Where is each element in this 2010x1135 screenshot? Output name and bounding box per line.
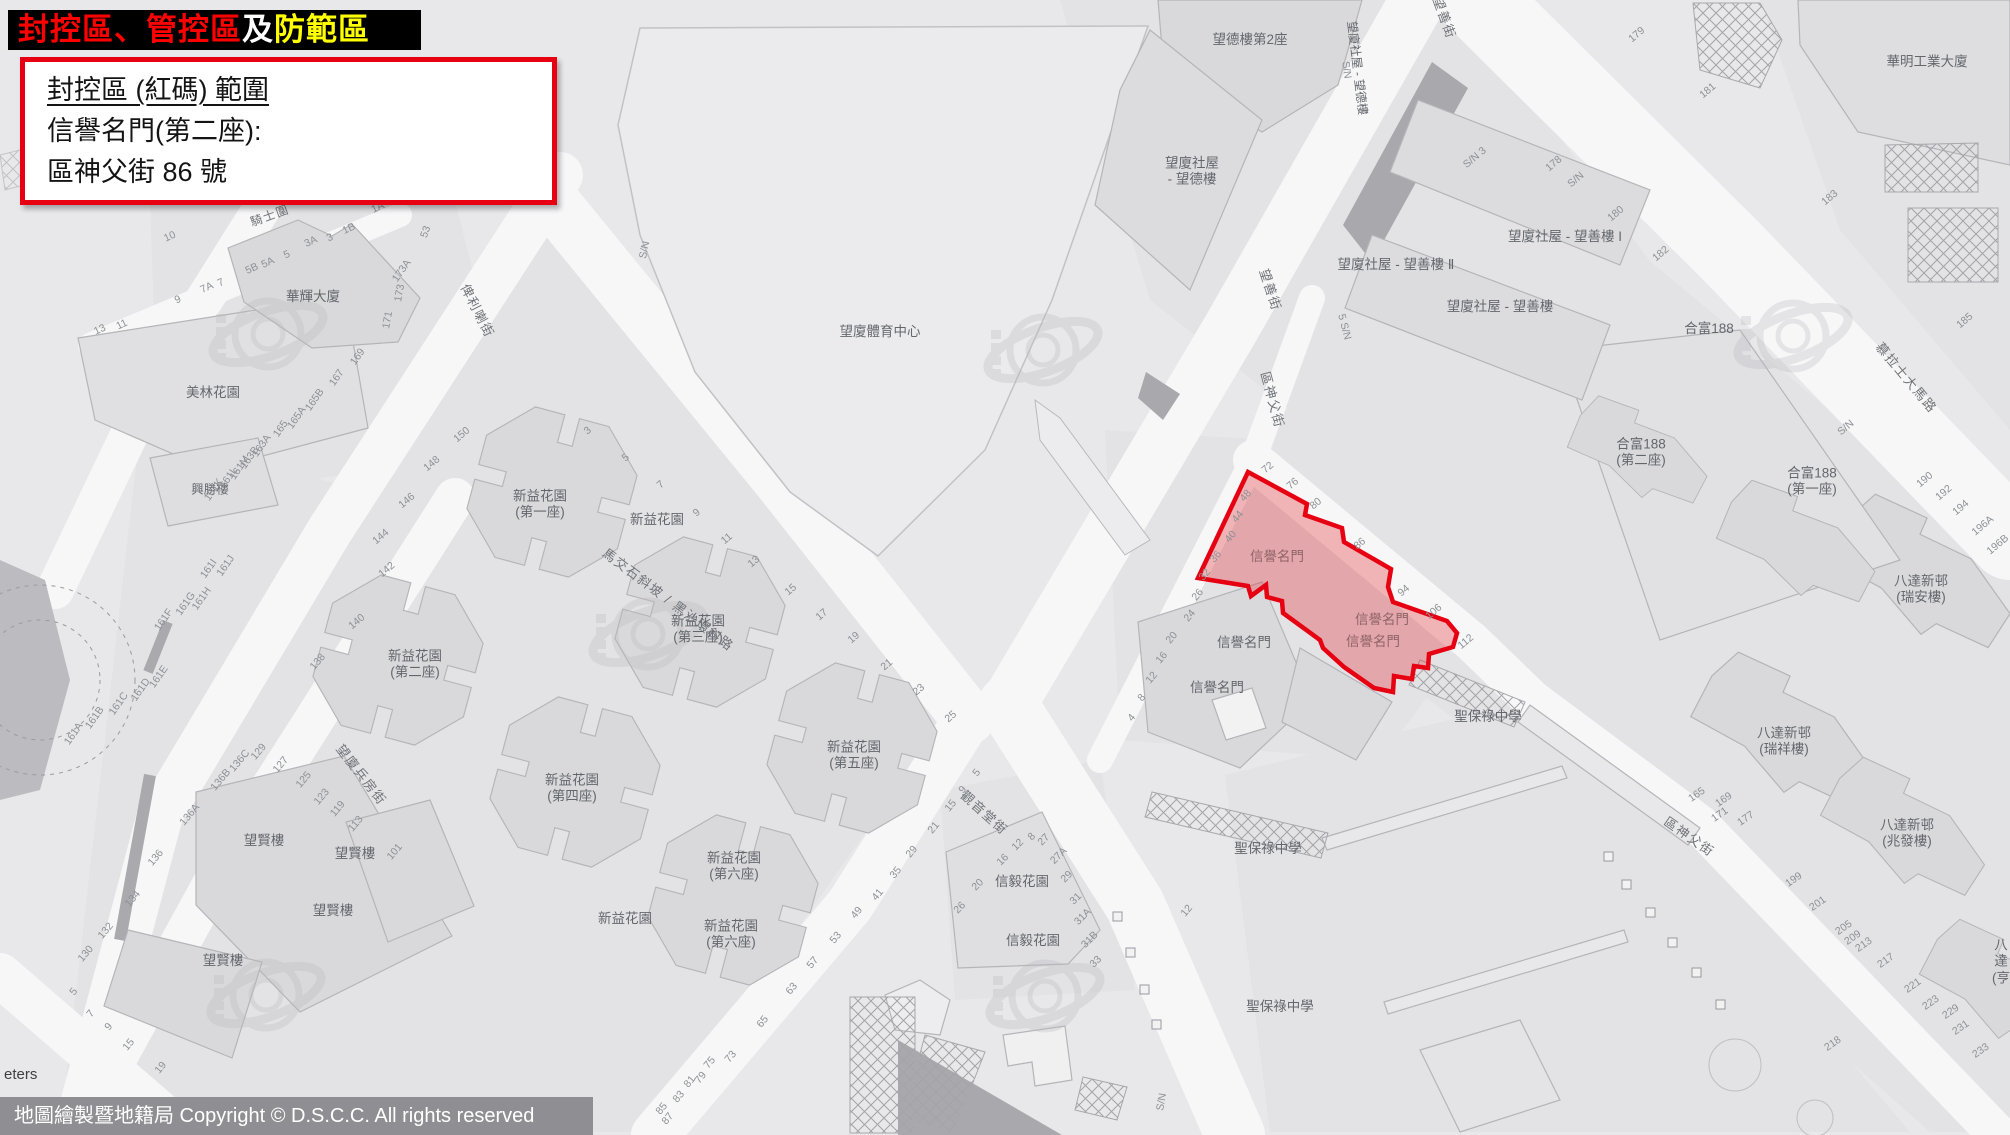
street-number-label: 161F bbox=[152, 607, 176, 634]
street-number-label: 4 bbox=[1125, 712, 1139, 725]
street-number-label: 161B bbox=[83, 704, 108, 731]
street-number-label: 3 bbox=[325, 231, 336, 245]
street-number-label: 106 bbox=[1423, 601, 1445, 622]
scale-label: eters bbox=[4, 1066, 37, 1083]
street-number-label: 177 bbox=[1735, 809, 1757, 830]
building-label: 合富188 bbox=[1684, 321, 1734, 337]
street-number-label: 129 bbox=[248, 741, 269, 763]
street-number-label: 21 bbox=[925, 819, 942, 836]
building-label: 八達 (亨 bbox=[1992, 937, 2010, 986]
street-label: 望廈兵房街 bbox=[332, 742, 389, 809]
street-number-label: 229 bbox=[1940, 1002, 1962, 1023]
street-number-label: 57 bbox=[804, 954, 821, 971]
street-number-label: 138 bbox=[307, 651, 328, 673]
street-number-label: 15 bbox=[782, 581, 799, 598]
building-label: 華輝大廈 bbox=[286, 289, 340, 305]
street-number-label: 86 bbox=[1351, 535, 1368, 552]
info-box-heading: 封控區 (紅碼) 範圍 bbox=[47, 75, 269, 105]
building-label: 信譽名門 bbox=[1190, 680, 1244, 696]
street-number-label: 49 bbox=[848, 904, 865, 921]
street-number-label: 136B bbox=[208, 766, 234, 793]
street-label: 望善街 bbox=[1429, 0, 1459, 41]
street-number-label: S/N bbox=[1835, 417, 1857, 438]
street-number-label: 8 bbox=[1135, 692, 1149, 705]
street-label: 俾利喇街 bbox=[457, 282, 497, 341]
street-number-label: 26 bbox=[1189, 586, 1206, 603]
copyright-bar: 地圖繪製暨地籍局 Copyright © D.S.C.C. All rights… bbox=[0, 1097, 593, 1135]
building-label: 新益花園 (第一座) bbox=[513, 489, 567, 522]
street-number-label: 144 bbox=[370, 526, 392, 547]
street-number-label: 150 bbox=[451, 424, 473, 445]
building-label: 信毅花園 bbox=[995, 874, 1049, 890]
street-number-label: 112 bbox=[1455, 632, 1476, 653]
building-label: 八達新邨 (兆發樓) bbox=[1880, 818, 1934, 851]
street-number-label: 75 bbox=[701, 1054, 718, 1071]
street-number-label: 29 bbox=[1058, 868, 1075, 885]
street-number-label: 185 bbox=[1954, 310, 1976, 331]
street-number-label: 19 bbox=[152, 1059, 169, 1076]
street-number-label: 17 bbox=[813, 606, 830, 623]
street-number-label: 132 bbox=[95, 920, 116, 942]
street-number-label: 178 bbox=[1543, 153, 1565, 174]
street-number-label: 65 bbox=[754, 1013, 771, 1030]
street-number-label: 171 bbox=[1709, 805, 1731, 826]
building-label: 美林花園 bbox=[186, 385, 240, 401]
info-box-building: 信譽名門(第二座): bbox=[47, 111, 552, 152]
street-number-label: 27 bbox=[1035, 831, 1052, 848]
street-number-label: 161I bbox=[198, 557, 220, 581]
street-number-label: 173 bbox=[392, 283, 408, 302]
street-number-label: 7 bbox=[216, 276, 227, 290]
street-number-label: 140 bbox=[346, 611, 368, 632]
street-number-label: 13 bbox=[745, 553, 762, 570]
street-number-label: 3A bbox=[302, 233, 319, 250]
street-number-label: 26 bbox=[951, 899, 968, 916]
building-label: 合富188 (第一座) bbox=[1787, 466, 1837, 499]
street-number-label: 12 bbox=[1178, 902, 1195, 919]
redzone-label: 信譽名門 bbox=[1346, 634, 1400, 650]
street-number-label: 217 bbox=[1875, 951, 1897, 972]
street-number-label: 223 bbox=[1920, 993, 1942, 1014]
street-number-label: 130 bbox=[75, 943, 96, 965]
street-number-label: 136 bbox=[145, 847, 166, 869]
building-label: 望賢樓 bbox=[313, 903, 354, 919]
street-number-label: 80 bbox=[1307, 495, 1324, 512]
street-number-label: 11 bbox=[114, 317, 129, 333]
street-number-label: 25 bbox=[942, 708, 959, 725]
street-number-label: 53 bbox=[827, 929, 844, 946]
street-number-label: 119 bbox=[328, 798, 349, 819]
title-segment-and: 及 bbox=[242, 12, 274, 47]
map-viewport: 望德樓第2座望廈社屋 - 望德樓望廈社屋 - 望德樓望廈社屋 - 望善樓 I望廈… bbox=[0, 0, 2010, 1135]
street-number-label: 40 bbox=[1222, 528, 1239, 545]
street-number-label: 7A bbox=[198, 279, 215, 296]
street-number-label: 142 bbox=[376, 559, 398, 580]
street-number-label: 183 bbox=[1819, 187, 1841, 208]
street-number-label: 73 bbox=[722, 1048, 739, 1065]
street-number-label: 10 bbox=[162, 229, 178, 246]
street-number-label: 196A bbox=[1969, 513, 1996, 539]
page-title-banner: 封控區、管控區及防範區 bbox=[8, 10, 421, 50]
street-number-label: S/N bbox=[1154, 1092, 1170, 1111]
street-number-label: 196B bbox=[1984, 532, 2010, 558]
street-number-label: 233 bbox=[1970, 1041, 1992, 1062]
street-number-label: 161A bbox=[62, 720, 87, 747]
street-number-label: 24 bbox=[1181, 607, 1198, 624]
street-number-label: 146 bbox=[396, 490, 418, 511]
street-number-label: 11 bbox=[719, 531, 736, 548]
title-segment-prevention: 防範區 bbox=[274, 12, 370, 47]
building-label: 華明工業大廈 bbox=[1887, 54, 1968, 70]
street-number-label: 5B bbox=[243, 260, 260, 277]
building-label: 望賢樓 bbox=[244, 833, 285, 849]
street-number-label: 5 bbox=[970, 767, 984, 780]
street-number-label: 31B bbox=[1079, 929, 1101, 951]
building-label: 望廈社屋 - 望善樓 Ⅱ bbox=[1338, 257, 1455, 273]
street-number-label: 161C bbox=[107, 690, 132, 718]
street-number-label: 31A bbox=[1072, 906, 1094, 928]
building-label: 望廈社屋 - 望善樓 bbox=[1447, 299, 1554, 315]
street-number-label: 134 bbox=[122, 888, 143, 910]
street-label: 馬交石斜坡 / 黑沙環斜路 bbox=[599, 545, 737, 654]
street-label: 區神父街 bbox=[1661, 814, 1718, 860]
street-number-label: 169 bbox=[348, 346, 369, 368]
street-number-label: 125 bbox=[293, 769, 314, 791]
building-label: 新益花園 (第六座) bbox=[707, 851, 761, 884]
street-number-label: S/N bbox=[1338, 60, 1353, 79]
street-number-label: 23 bbox=[910, 681, 927, 698]
street-number-label: 16 bbox=[1153, 649, 1170, 666]
street-number-label: 194 bbox=[1950, 497, 1972, 518]
street-number-label: 148 bbox=[421, 453, 443, 474]
street-number-label: 201 bbox=[1807, 894, 1829, 915]
street-number-label: 13 bbox=[92, 322, 108, 339]
street-number-label: 221 bbox=[1902, 976, 1924, 997]
street-number-label: 9 bbox=[102, 1021, 116, 1034]
building-label: 望廈社屋 - 望德樓 bbox=[1165, 156, 1219, 189]
street-number-label: 35 bbox=[887, 864, 904, 881]
street-number-label: 5 bbox=[620, 451, 633, 465]
street-number-label: S/N bbox=[1565, 169, 1587, 190]
street-number-label: S/N 3 bbox=[1461, 145, 1489, 172]
street-number-label: 127 bbox=[270, 754, 291, 776]
street-number-label: 44 bbox=[1229, 508, 1246, 525]
redzone-label: 信譽名門 bbox=[1250, 549, 1304, 565]
building-label: 八達新邨 (瑞安樓) bbox=[1894, 574, 1948, 607]
street-number-label: 72 bbox=[1259, 459, 1276, 476]
street-number-label: 231 bbox=[1950, 1018, 1972, 1039]
building-label: 八達新邨 (瑞祥樓) bbox=[1757, 726, 1811, 759]
street-number-label: 181 bbox=[1697, 80, 1719, 101]
building-label: 望賢樓 bbox=[335, 846, 376, 862]
building-label: 望廈體育中心 bbox=[840, 324, 921, 340]
title-segment-lockdown: 封控區、管控區 bbox=[18, 12, 242, 47]
street-number-label: 192 bbox=[1933, 482, 1955, 503]
street-number-label: 27A bbox=[1048, 845, 1070, 867]
street-number-label: 5 bbox=[282, 248, 293, 262]
building-label: 新益花園 (第二座) bbox=[388, 649, 442, 682]
street-number-label: 83 bbox=[670, 1088, 687, 1105]
street-number-label: 94 bbox=[1395, 582, 1412, 599]
street-number-label: 32 bbox=[1196, 566, 1213, 583]
street-number-label: 20 bbox=[1163, 629, 1180, 646]
street-number-label: 136C bbox=[227, 747, 253, 774]
building-label: 聖保祿中學 bbox=[1234, 841, 1302, 857]
street-number-label: 161D bbox=[129, 676, 154, 704]
street-number-label: 7 bbox=[655, 478, 668, 492]
building-label: 新益花園 (第六座) bbox=[704, 919, 758, 952]
building-label: 望廈社屋 - 望善樓 I bbox=[1508, 229, 1622, 245]
street-number-label: 36 bbox=[1207, 548, 1224, 565]
street-number-label: 9 bbox=[173, 293, 184, 307]
red-zone-info-box: 封控區 (紅碼) 範圍 信譽名門(第二座): 區神父街 86 號 bbox=[20, 57, 557, 205]
street-number-label: S/N bbox=[637, 240, 653, 260]
street-number-label: 53 bbox=[418, 224, 434, 239]
street-number-label: 171 bbox=[380, 310, 396, 329]
street-number-label: 5 S/N bbox=[1334, 313, 1353, 342]
street-label: 區神父街 bbox=[1257, 370, 1287, 430]
street-label: 騎士圍 bbox=[248, 202, 291, 230]
street-number-label: 20 bbox=[969, 876, 986, 893]
street-label: 慕拉士大馬路 bbox=[1872, 340, 1940, 417]
street-number-label: 113 bbox=[346, 813, 367, 834]
street-number-label: 21 bbox=[878, 656, 895, 673]
building-label: 信譽名門 bbox=[1217, 635, 1271, 651]
street-number-label: 5A bbox=[259, 254, 276, 271]
street-number-label: 167 bbox=[327, 367, 348, 389]
street-number-label: 31 bbox=[1067, 890, 1084, 907]
street-number-label: 29 bbox=[903, 843, 920, 860]
street-number-label: 123 bbox=[311, 786, 332, 808]
street-number-label: 218 bbox=[1822, 1034, 1844, 1055]
redzone-label: 信譽名門 bbox=[1355, 612, 1409, 628]
building-label: 望賢樓 bbox=[203, 953, 244, 969]
street-number-label: 76 bbox=[1284, 475, 1301, 492]
building-label: 望德樓第2座 bbox=[1212, 32, 1287, 48]
building-label: 新益花園 bbox=[598, 911, 652, 927]
street-number-label: 173A bbox=[390, 257, 415, 284]
info-box-address: 區神父街 86 號 bbox=[47, 152, 552, 193]
building-label: 合富188 (第二座) bbox=[1616, 437, 1666, 470]
street-number-label: 165 bbox=[1686, 785, 1708, 806]
street-number-label: 41 bbox=[869, 886, 886, 903]
street-number-label: 48 bbox=[1237, 487, 1254, 504]
building-label: 新益花園 (第四座) bbox=[545, 773, 599, 806]
building-label: 新益花園 (第五座) bbox=[827, 740, 881, 773]
street-number-label: 16 bbox=[994, 851, 1011, 868]
street-number-label: 190 bbox=[1914, 469, 1936, 490]
building-label: 聖保祿中學 bbox=[1246, 999, 1314, 1015]
street-number-label: 5 bbox=[67, 986, 81, 999]
building-label: 新益花園 bbox=[630, 512, 684, 528]
street-number-label: 101 bbox=[384, 841, 405, 863]
street-number-label: 3 bbox=[582, 424, 595, 438]
street-number-label: 12 bbox=[1143, 669, 1160, 686]
street-number-label: 180 bbox=[1605, 203, 1627, 224]
street-number-label: 1B bbox=[340, 220, 357, 237]
street-number-label: 19 bbox=[845, 629, 862, 646]
street-number-label: 63 bbox=[783, 980, 800, 997]
street-number-label: 136A bbox=[177, 801, 203, 828]
street-label: 望善街 bbox=[1256, 267, 1285, 313]
street-number-label: 9 bbox=[691, 506, 704, 520]
street-number-label: 33 bbox=[1087, 953, 1104, 970]
street-number-label: 179 bbox=[1626, 24, 1648, 45]
building-label: 信毅花園 bbox=[1006, 933, 1060, 949]
street-number-label: 199 bbox=[1783, 870, 1805, 891]
building-label: 聖保祿中學 bbox=[1454, 709, 1522, 725]
street-number-label: 12 bbox=[1009, 836, 1026, 853]
street-number-label: 7 bbox=[84, 1008, 98, 1021]
street-number-label: 182 bbox=[1650, 243, 1672, 264]
street-number-label: 15 bbox=[120, 1036, 137, 1053]
